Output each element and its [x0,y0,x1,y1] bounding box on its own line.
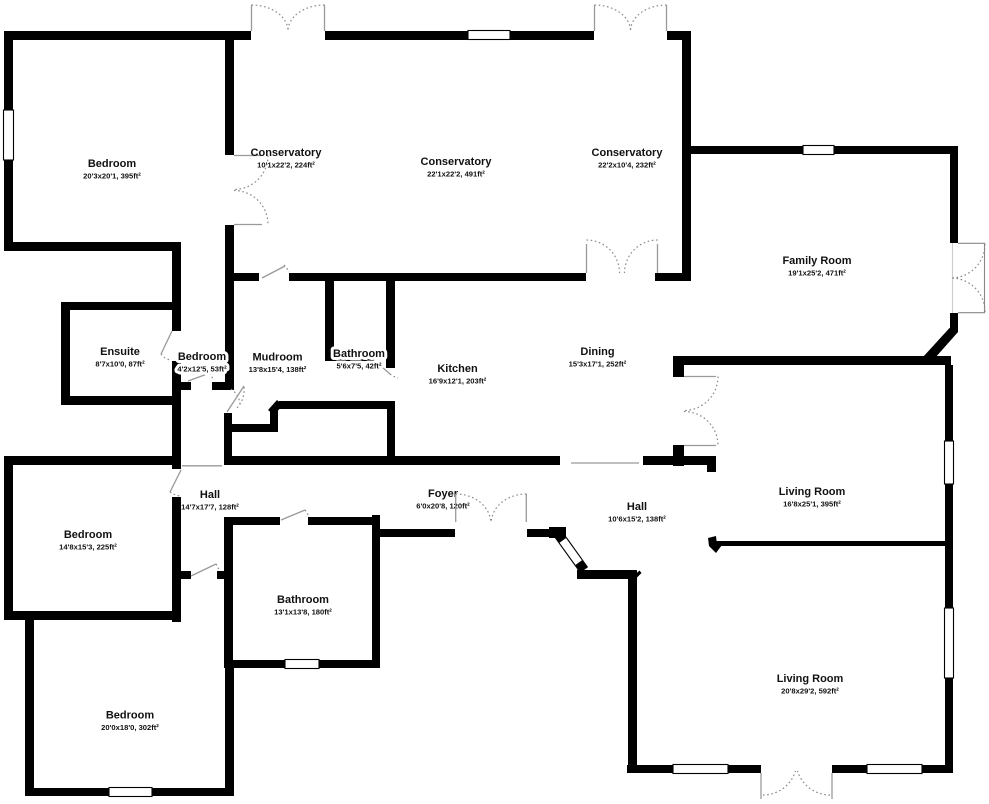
svg-text:10'1x22'2, 224ft²: 10'1x22'2, 224ft² [257,161,315,170]
svg-text:14'7x17'7, 128ft²: 14'7x17'7, 128ft² [181,503,239,512]
svg-text:13'8x15'4, 138ft²: 13'8x15'4, 138ft² [249,365,307,374]
svg-text:Living Room: Living Room [779,486,846,498]
svg-text:Living Room: Living Room [777,673,844,685]
svg-text:Bedroom: Bedroom [88,158,137,170]
svg-text:20'3x20'1, 395ft²: 20'3x20'1, 395ft² [83,172,141,181]
svg-text:13'1x13'8, 180ft²: 13'1x13'8, 180ft² [274,608,332,617]
svg-text:16'9x12'1, 203ft²: 16'9x12'1, 203ft² [429,377,487,386]
svg-text:22'1x22'2, 491ft²: 22'1x22'2, 491ft² [427,170,485,179]
svg-text:15'3x17'1, 252ft²: 15'3x17'1, 252ft² [569,360,627,369]
svg-text:Ensuite: Ensuite [100,346,140,358]
svg-text:Kitchen: Kitchen [437,363,478,375]
svg-text:10'6x15'2, 138ft²: 10'6x15'2, 138ft² [608,515,666,524]
svg-text:Mudroom: Mudroom [252,352,302,364]
svg-text:Bathroom: Bathroom [277,594,329,606]
svg-text:Bathroom: Bathroom [333,348,385,360]
svg-text:4'2x12'5, 53ft²: 4'2x12'5, 53ft² [177,365,227,374]
svg-text:8'7x10'0, 87ft²: 8'7x10'0, 87ft² [95,360,145,369]
svg-text:Conservatory: Conservatory [592,147,664,159]
svg-text:20'8x29'2, 592ft²: 20'8x29'2, 592ft² [781,687,839,696]
svg-text:Bedroom: Bedroom [178,351,227,363]
svg-text:14'8x15'3, 225ft²: 14'8x15'3, 225ft² [59,543,117,552]
svg-text:Conservatory: Conservatory [421,156,493,168]
svg-text:20'0x18'0, 302ft²: 20'0x18'0, 302ft² [101,723,159,732]
svg-text:Dining: Dining [580,346,614,358]
svg-text:19'1x25'2, 471ft²: 19'1x25'2, 471ft² [788,269,846,278]
svg-text:Bedroom: Bedroom [64,529,113,541]
svg-text:Bedroom: Bedroom [106,710,155,722]
svg-text:5'6x7'5, 42ft²: 5'6x7'5, 42ft² [337,362,382,371]
svg-text:Conservatory: Conservatory [251,147,323,159]
svg-text:Hall: Hall [200,489,220,501]
svg-text:16'8x25'1, 395ft²: 16'8x25'1, 395ft² [783,500,841,509]
svg-text:Family Room: Family Room [782,255,851,267]
svg-text:6'0x20'8, 120ft²: 6'0x20'8, 120ft² [416,502,470,511]
svg-text:22'2x10'4, 232ft²: 22'2x10'4, 232ft² [598,161,656,170]
svg-text:Hall: Hall [627,501,647,513]
svg-text:Foyer: Foyer [428,488,459,500]
